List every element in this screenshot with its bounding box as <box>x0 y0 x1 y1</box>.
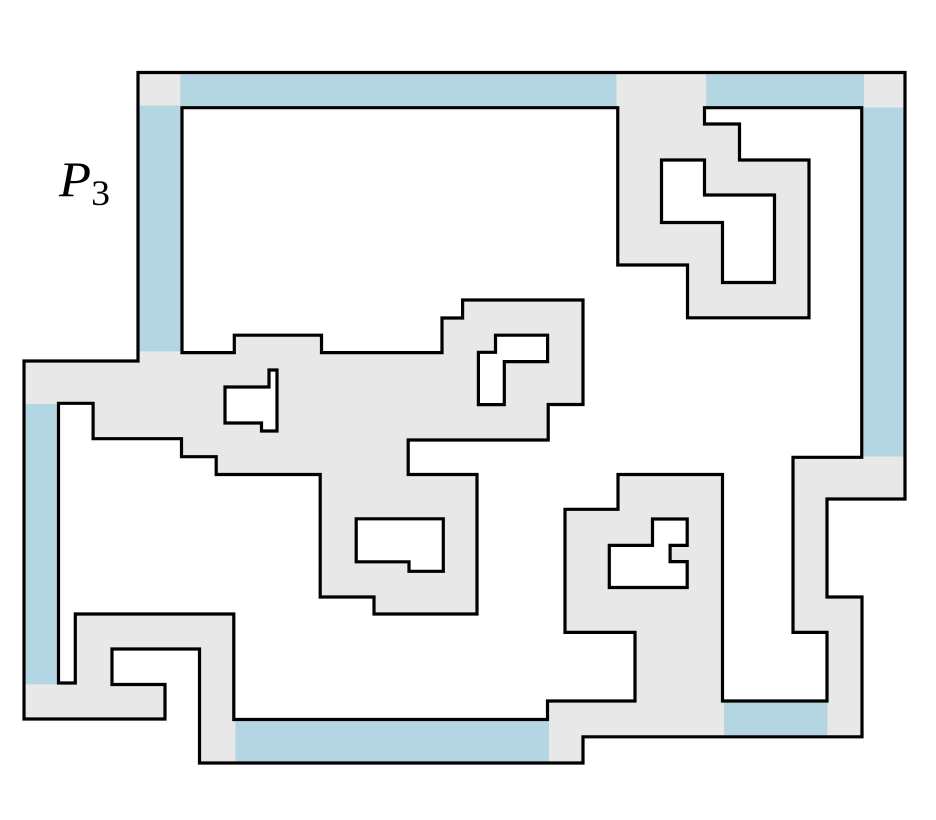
svg-text:P3: P3 <box>58 152 110 213</box>
